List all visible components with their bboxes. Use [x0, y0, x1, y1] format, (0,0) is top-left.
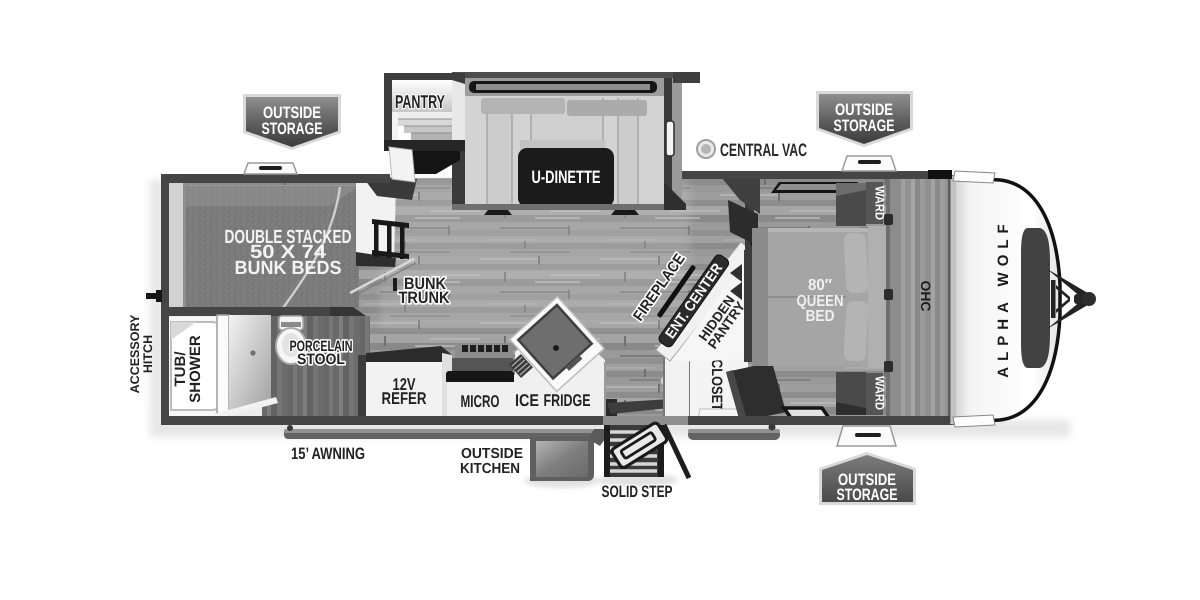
svg-text:15’ AWNING: 15’ AWNING: [291, 445, 365, 463]
svg-text:STORAGE: STORAGE: [837, 486, 898, 504]
svg-text:SOLID STEP: SOLID STEP: [602, 483, 673, 501]
svg-text:KITCHEN: KITCHEN: [460, 461, 520, 477]
svg-text:BUNK BEDS: BUNK BEDS: [235, 258, 342, 279]
svg-text:OHC: OHC: [918, 281, 933, 312]
svg-text:PANTRY: PANTRY: [395, 91, 445, 112]
svg-text:BED: BED: [806, 308, 835, 325]
svg-text:CLOSET: CLOSET: [708, 359, 725, 411]
svg-text:U-DINETTE: U-DINETTE: [532, 167, 601, 187]
svg-text:TRUNK: TRUNK: [399, 289, 450, 307]
svg-text:FRIDGE: FRIDGE: [544, 391, 591, 410]
svg-text:STOOL: STOOL: [297, 351, 345, 368]
svg-text:ALPHA WOLF: ALPHA WOLF: [995, 218, 1012, 377]
svg-text:STORAGE: STORAGE: [834, 117, 895, 135]
svg-text:WARD: WARD: [873, 376, 887, 410]
svg-text:STORAGE: STORAGE: [262, 120, 323, 138]
svg-text:MICRO: MICRO: [461, 392, 500, 411]
svg-text:CENTRAL VAC: CENTRAL VAC: [720, 140, 807, 160]
svg-text:80″: 80″: [808, 277, 832, 294]
svg-text:OUTSIDE: OUTSIDE: [461, 446, 523, 462]
svg-text:ICE: ICE: [515, 391, 539, 410]
svg-text:REFER: REFER: [382, 389, 427, 408]
